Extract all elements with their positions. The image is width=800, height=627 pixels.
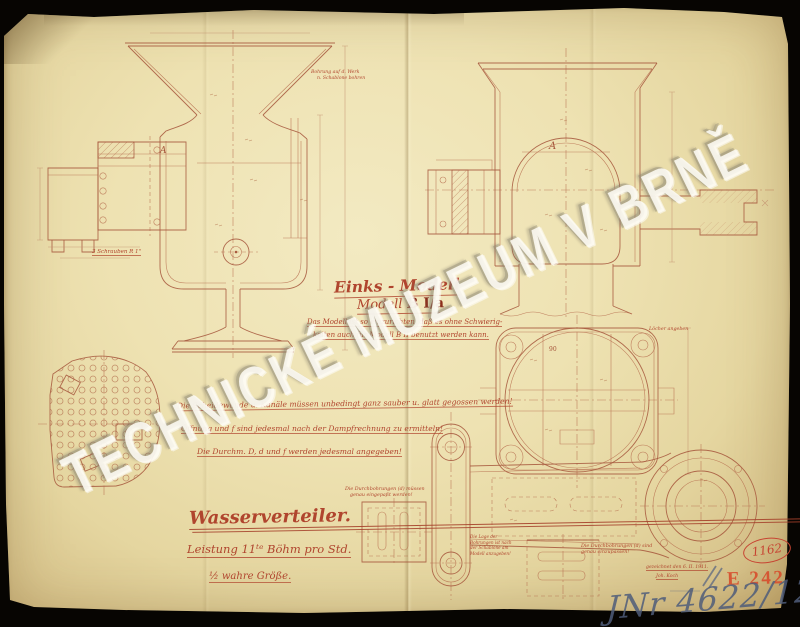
section-label-a-right: A <box>549 141 556 152</box>
funnel-annotation-line2: n. Schablone bohren <box>317 76 365 82</box>
instruction-line3: Die Durchm. D, d und f werden jedesmal a… <box>197 447 402 457</box>
scanned-blueprint: Einks - Modell Modell B I/a Das Modell i… <box>0 0 800 627</box>
detail-b-note-line2: genau einzupassen! <box>581 550 652 556</box>
detail-b-annotation: Die Durchbohrungen (d) sind genau einzup… <box>581 544 652 557</box>
detail-a-annotation: Die Durchbohrungen (d) müssen genau eing… <box>345 487 425 500</box>
dimension-90: 90 <box>549 346 557 353</box>
drawing-scale: ½ wahre Größe. <box>209 571 291 583</box>
funnel-annotation: Bohrung auf d. Werk n. Schablone bohren <box>311 70 365 82</box>
plan-annotation: Löcher angeben <box>649 327 688 332</box>
detail-a-note-line2: genau eingepaßt werden! <box>350 493 425 499</box>
detail-c-note-line3: der Schablone am <box>470 545 512 551</box>
section-label-a-left: A <box>160 146 167 156</box>
detail-c-annotation: Die Lage der Bohrungen ist nach der Scha… <box>470 534 512 556</box>
date-line1: gezeichnet den 6. II. 1911. <box>646 565 708 571</box>
date-line2: Joh. Koch <box>656 574 678 580</box>
detail-c-note-line4: Modell anzugeben! <box>470 551 512 557</box>
screws-label: 3 Schrauben R 1" <box>92 249 141 256</box>
drawing-subtitle: Leistung 11ᵗᵉ Böhm pro Std. <box>187 542 351 558</box>
